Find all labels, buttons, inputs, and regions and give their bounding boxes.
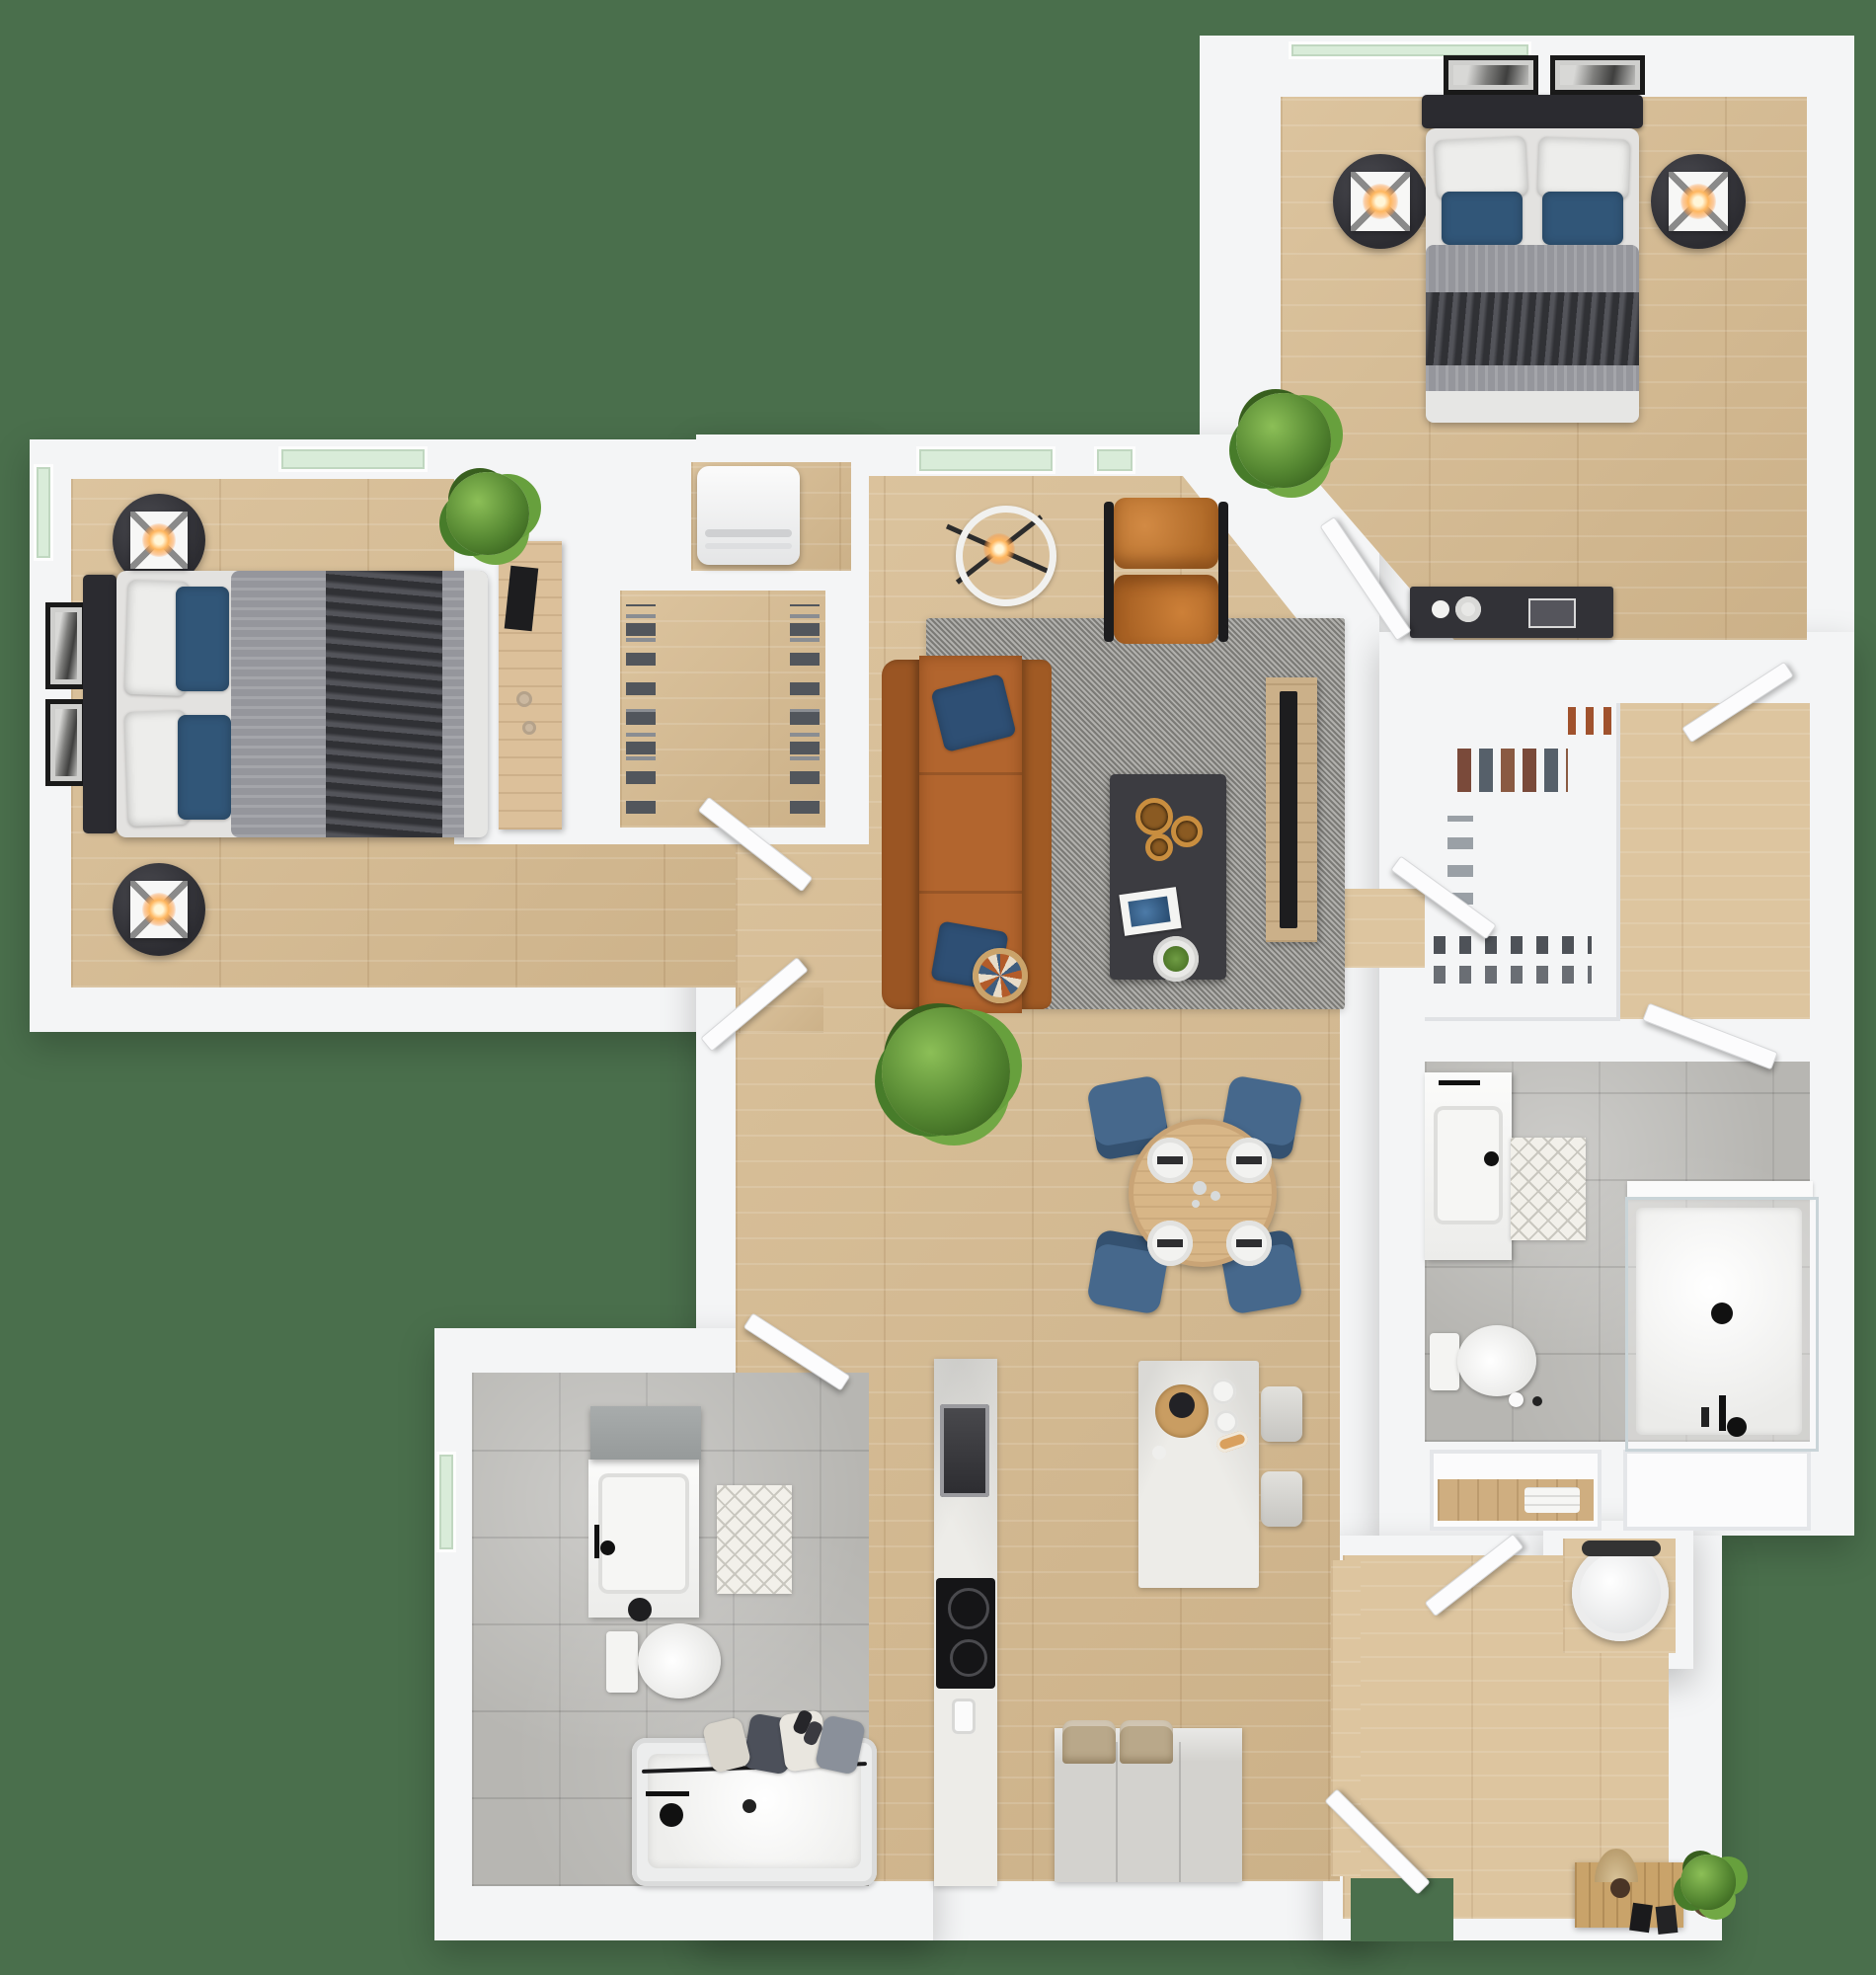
washer xyxy=(697,466,800,565)
headboard xyxy=(83,575,117,833)
washer-lid-line-2 xyxy=(705,543,792,549)
bedroom1-lamp-bottom-glow xyxy=(142,893,176,926)
floor-lamp xyxy=(948,498,1051,600)
bathroom2-mat xyxy=(1511,1138,1586,1240)
closet2-shoe-row-2 xyxy=(1434,966,1592,984)
throw-blanket xyxy=(1426,292,1639,365)
place-setting-2 xyxy=(1226,1138,1272,1183)
chair-seat-cushion xyxy=(1114,575,1218,644)
shower-enclosure xyxy=(1625,1197,1819,1452)
vanity-tap-bar xyxy=(1439,1080,1480,1085)
pampas-grass xyxy=(1595,1849,1638,1882)
shower-head xyxy=(1727,1417,1747,1437)
tub-tap-bar xyxy=(646,1791,689,1796)
toilet-tank xyxy=(606,1631,638,1693)
vanity-faucet xyxy=(1484,1151,1499,1166)
bar-stool-2 xyxy=(1261,1471,1302,1527)
shower-wand xyxy=(1719,1395,1726,1431)
chair-frame-right xyxy=(1218,502,1228,642)
sofa-seam-1 xyxy=(919,772,1022,775)
coaster-3 xyxy=(1145,833,1173,861)
bathroom1-shelf xyxy=(590,1406,701,1460)
living-window-1 xyxy=(916,446,1055,474)
bedroom2-desk xyxy=(1410,587,1613,638)
sofa-bolster-pillow xyxy=(973,948,1028,1003)
sofa-back xyxy=(882,660,919,1009)
bedroom1-art-frame-2 xyxy=(45,699,87,786)
magazine xyxy=(1119,887,1181,936)
tv-console xyxy=(1266,677,1317,942)
pillow-white-right xyxy=(1537,136,1630,198)
bathroom2-vanity xyxy=(1425,1072,1512,1260)
duvet-fold xyxy=(1426,391,1639,423)
toilet-bowl xyxy=(638,1623,721,1698)
art-photo xyxy=(55,709,77,776)
bathroom1-left-window xyxy=(436,1452,456,1552)
bedroom2-art-frame-2 xyxy=(1550,55,1645,95)
linen-niche xyxy=(1430,1450,1602,1531)
shower-drain xyxy=(1711,1303,1733,1324)
cabinet-seam-1 xyxy=(1116,1742,1118,1882)
bedroom2-bed xyxy=(1422,95,1643,423)
burner-2 xyxy=(950,1639,987,1677)
kitchen-sink xyxy=(952,1698,976,1734)
pillow-blue-bottom xyxy=(178,715,231,820)
toilet-bowl xyxy=(1457,1325,1536,1396)
towel-stack xyxy=(1524,1487,1580,1513)
pillow-white-left xyxy=(1434,136,1527,200)
chair-back-cushion xyxy=(1114,498,1218,569)
art-photo xyxy=(1453,65,1528,85)
salt-cellar xyxy=(1152,1446,1166,1460)
cabinet-seam-2 xyxy=(1179,1742,1181,1882)
decor-plate xyxy=(1153,936,1199,982)
napkin xyxy=(1157,1156,1183,1164)
bedroom1-plant xyxy=(446,472,529,555)
throw-blanket xyxy=(326,571,442,837)
napkin xyxy=(1236,1156,1262,1164)
burner-1 xyxy=(948,1588,989,1629)
toilet-paper xyxy=(1509,1392,1524,1407)
black-book xyxy=(505,566,539,632)
tv-screen xyxy=(1280,691,1297,928)
desk-plate xyxy=(1455,596,1481,622)
bedroom1-desk xyxy=(499,541,562,829)
bedroom1-top-window xyxy=(278,446,428,472)
closet2-opening xyxy=(1335,889,1428,968)
pillow-blue-left xyxy=(1442,192,1523,245)
coaster-1 xyxy=(1135,798,1173,835)
entry-door-opening xyxy=(1351,1878,1453,1941)
bathroom1-toilet xyxy=(606,1623,721,1698)
closet1-shoes-right xyxy=(790,604,820,814)
coffee-table xyxy=(1110,774,1226,980)
tub-faucet xyxy=(660,1803,683,1827)
wall-oven xyxy=(940,1404,989,1497)
place-setting-1 xyxy=(1147,1138,1193,1183)
art-photo xyxy=(1560,65,1635,85)
closet2-shoe-row-1 xyxy=(1434,936,1592,954)
bathroom1-trash-can xyxy=(628,1598,652,1621)
living-monstera-plant xyxy=(882,1007,1010,1136)
rattan-basket-1 xyxy=(1062,1720,1116,1764)
console-books xyxy=(1629,1903,1653,1934)
chair-frame-left xyxy=(1104,502,1114,642)
console-books-2 xyxy=(1656,1905,1679,1935)
bedroom2-lamp-left-glow xyxy=(1363,184,1398,219)
kitchen-island xyxy=(1138,1361,1259,1588)
place-setting-4 xyxy=(1226,1221,1272,1266)
entry-plant xyxy=(1681,1855,1736,1910)
island-plate-1 xyxy=(1211,1379,1236,1404)
bathroom1-vanity xyxy=(588,1460,699,1618)
living-window-2 xyxy=(1094,446,1135,474)
closet2-hangers xyxy=(1568,707,1619,735)
cooktop xyxy=(936,1578,995,1689)
magazine-cover-art xyxy=(1128,896,1170,926)
vanity-basin xyxy=(598,1473,689,1594)
bathroom1-mat xyxy=(717,1485,792,1594)
sofa-front-edge xyxy=(1022,660,1052,1009)
closet2-accessory-shelf xyxy=(1447,816,1473,905)
storage-niche xyxy=(1623,1450,1811,1531)
water-heater-pipe xyxy=(1582,1540,1661,1556)
console-vase xyxy=(1610,1878,1630,1898)
island-plate-2 xyxy=(1214,1410,1238,1434)
vanity-tap-bar xyxy=(594,1525,599,1558)
place-setting-3 xyxy=(1147,1221,1193,1266)
napkin xyxy=(1236,1239,1262,1247)
bedroom1-lamp-top-glow xyxy=(142,523,176,557)
coaster-2 xyxy=(1171,816,1203,847)
lamp-bulb-glow xyxy=(983,533,1015,565)
bathroom2-toilet xyxy=(1430,1325,1538,1396)
pillow-blue-top xyxy=(176,587,229,691)
pillow-blue-right xyxy=(1542,192,1623,245)
desk-keyboard xyxy=(1528,598,1576,628)
water-heater xyxy=(1572,1544,1669,1641)
bedroom1-left-window xyxy=(34,464,53,561)
accent-chair xyxy=(1104,498,1228,646)
bar-stool-1 xyxy=(1261,1386,1302,1442)
table-glassware xyxy=(1193,1181,1207,1195)
vanity-faucet xyxy=(600,1540,615,1555)
floor-plan-canvas xyxy=(0,0,1876,1975)
toilet-tank xyxy=(1430,1333,1459,1390)
bread-tray xyxy=(1214,1429,1249,1454)
sofa-seam-2 xyxy=(919,891,1022,894)
plate-greens xyxy=(1163,946,1189,972)
moka-pot xyxy=(1169,1392,1195,1418)
closet2-hanging-clothes xyxy=(1457,749,1568,792)
bedroom1-bed xyxy=(83,571,488,837)
tub-drain xyxy=(743,1799,756,1813)
candle-1 xyxy=(516,691,532,707)
bedroom2-lamp-right-glow xyxy=(1681,184,1716,219)
art-photo xyxy=(55,612,77,679)
napkin xyxy=(1157,1239,1183,1247)
bedroom2-art-frame-1 xyxy=(1444,55,1538,95)
candle-2 xyxy=(522,721,536,735)
bedroom1-art-frame-1 xyxy=(45,602,87,689)
bedroom2-plant xyxy=(1236,393,1331,488)
washer-lid-line xyxy=(705,529,792,537)
headboard xyxy=(1422,95,1643,128)
sofa xyxy=(882,656,1052,1013)
desk-mug xyxy=(1432,600,1449,618)
rattan-basket-2 xyxy=(1120,1720,1173,1764)
duvet-fold xyxy=(464,571,488,837)
closet1-shoes-left xyxy=(626,604,656,814)
toilet-brush xyxy=(1532,1396,1542,1406)
shower-ledge xyxy=(1627,1181,1813,1197)
shower-bottle xyxy=(1701,1407,1709,1427)
